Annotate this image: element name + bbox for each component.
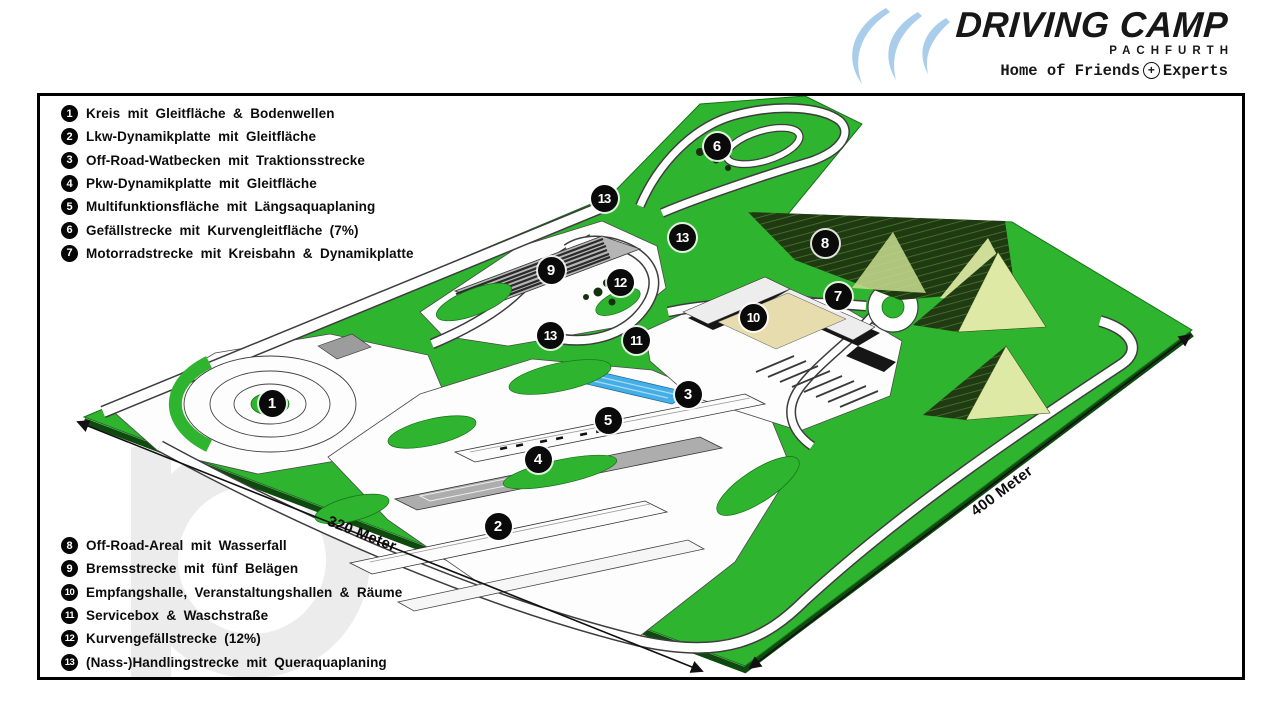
logo: DRIVING CAMP PACHFURTH Home of Friends +…: [835, 0, 1235, 92]
legend-item: 4Pkw-Dynamikplatte mit Gleitfläche: [61, 172, 414, 195]
map-marker-10: 10: [740, 304, 767, 331]
legend-item-label: Kreis mit Gleitfläche & Bodenwellen: [86, 106, 335, 121]
legend-item-label: Kurvengefällstrecke (12%): [86, 631, 261, 646]
legend-item-label: Bremsstrecke mit fünf Belägen: [86, 561, 298, 576]
logo-swoosh-icon: [840, 4, 965, 88]
map-marker-11: 11: [623, 327, 650, 354]
logo-text: DRIVING CAMP PACHFURTH Home of Friends +…: [956, 6, 1228, 80]
legend-number-badge: 6: [61, 222, 78, 239]
map-marker-13: 13: [669, 224, 696, 251]
slide: DRIVING CAMP PACHFURTH Home of Friends +…: [0, 0, 1280, 720]
legend-number-badge: 10: [61, 584, 78, 601]
legend-number-badge: 4: [61, 175, 78, 192]
map-marker-7: 7: [825, 283, 852, 310]
legend-item: 11Servicebox & Waschstraße: [61, 604, 402, 627]
map-marker-2: 2: [485, 513, 512, 540]
legend-top: 1Kreis mit Gleitfläche & Bodenwellen2Lkw…: [61, 102, 414, 265]
legend-number-badge: 8: [61, 537, 78, 554]
legend-item-label: Empfangshalle, Veranstaltungshallen & Rä…: [86, 585, 402, 600]
map-marker-6: 6: [704, 133, 731, 160]
map-marker-1: 1: [259, 390, 286, 417]
legend-item-label: Off-Road-Watbecken mit Traktionsstrecke: [86, 153, 365, 168]
map-marker-12: 12: [607, 269, 634, 296]
legend-item-label: Servicebox & Waschstraße: [86, 608, 268, 623]
legend-item: 12Kurvengefällstrecke (12%): [61, 627, 402, 650]
brand-name: DRIVING CAMP: [955, 6, 1230, 44]
brand-tagline: Home of Friends + Experts: [956, 62, 1228, 80]
plus-circle-icon: +: [1143, 62, 1160, 79]
map-marker-13: 13: [591, 185, 618, 212]
legend-item: 1Kreis mit Gleitfläche & Bodenwellen: [61, 102, 414, 125]
map-marker-9: 9: [538, 257, 565, 284]
legend-item-label: Pkw-Dynamikplatte mit Gleitfläche: [86, 176, 317, 191]
legend-item: 5Multifunktionsfläche mit Längsaquaplani…: [61, 195, 414, 218]
legend-item: 10Empfangshalle, Veranstaltungshallen & …: [61, 581, 402, 604]
map-marker-8: 8: [812, 230, 839, 257]
legend-item: 2Lkw-Dynamikplatte mit Gleitfläche: [61, 125, 414, 148]
tagline-left: Home of Friends: [1000, 62, 1140, 80]
legend-bottom: 8Off-Road-Areal mit Wasserfall9Bremsstre…: [61, 534, 402, 674]
tagline-right: Experts: [1163, 62, 1228, 80]
legend-number-badge: 1: [61, 105, 78, 122]
legend-item: 3Off-Road-Watbecken mit Traktionsstrecke: [61, 149, 414, 172]
legend-number-badge: 12: [61, 630, 78, 647]
legend-number-badge: 7: [61, 245, 78, 262]
legend-number-badge: 3: [61, 152, 78, 169]
legend-number-badge: 5: [61, 198, 78, 215]
legend-item-label: Lkw-Dynamikplatte mit Gleitfläche: [86, 129, 316, 144]
legend-number-badge: 13: [61, 654, 78, 671]
map-marker-3: 3: [675, 381, 702, 408]
brand-location: PACHFURTH: [956, 45, 1234, 57]
legend-item-label: Off-Road-Areal mit Wasserfall: [86, 538, 287, 553]
legend-item-label: Multifunktionsfläche mit Längsaquaplanin…: [86, 199, 375, 214]
legend-item: 7Motorradstrecke mit Kreisbahn & Dynamik…: [61, 242, 414, 265]
legend-number-badge: 9: [61, 560, 78, 577]
legend-item: 9Bremsstrecke mit fünf Belägen: [61, 557, 402, 580]
legend-item: 6Gefällstrecke mit Kurvengleitfläche (7%…: [61, 218, 414, 241]
legend-item-label: Motorradstrecke mit Kreisbahn & Dynamikp…: [86, 246, 414, 261]
legend-item: 13(Nass-)Handlingstrecke mit Queraquapla…: [61, 650, 402, 673]
map-marker-4: 4: [525, 446, 552, 473]
legend-item-label: Gefällstrecke mit Kurvengleitfläche (7%): [86, 223, 359, 238]
map-marker-5: 5: [595, 407, 622, 434]
legend-item-label: (Nass-)Handlingstrecke mit Queraquaplani…: [86, 655, 387, 670]
legend-number-badge: 11: [61, 607, 78, 624]
map-marker-13: 13: [537, 322, 564, 349]
legend-number-badge: 2: [61, 128, 78, 145]
